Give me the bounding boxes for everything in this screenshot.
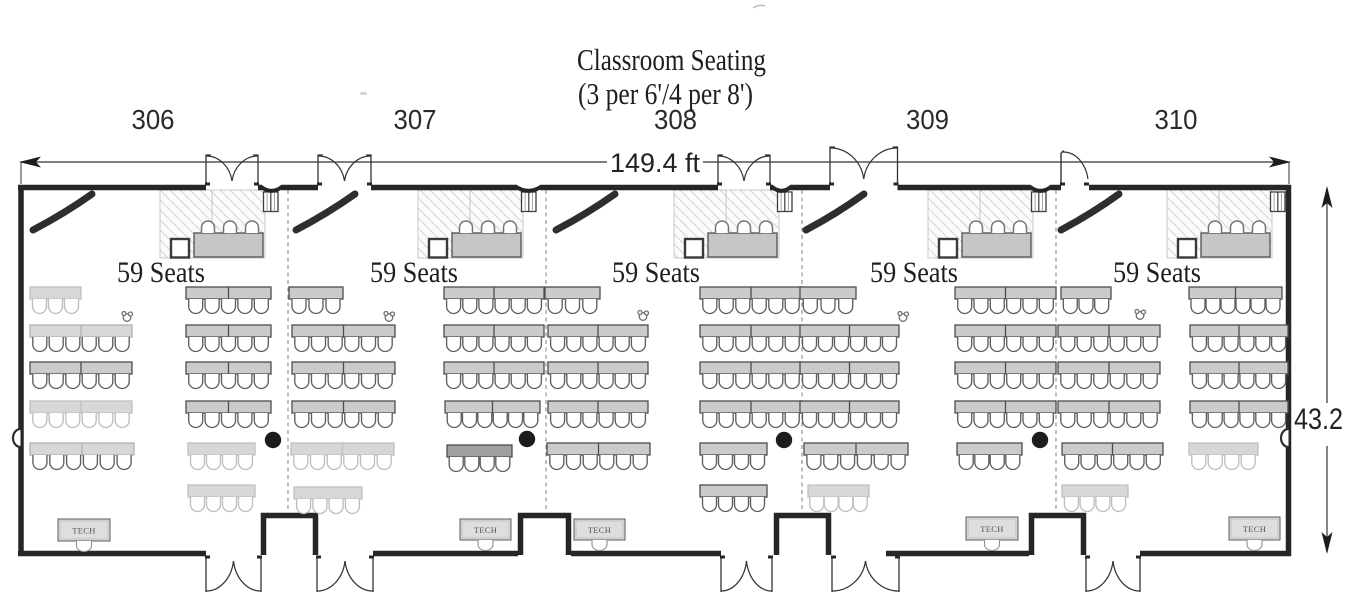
svg-text:TECH: TECH <box>980 524 1003 534</box>
svg-text:310: 310 <box>1155 104 1198 135</box>
svg-text:309: 309 <box>906 104 949 135</box>
svg-text:TECH: TECH <box>1243 524 1266 534</box>
svg-text:308: 308 <box>654 104 697 135</box>
svg-text:59 Seats: 59 Seats <box>1113 256 1201 289</box>
svg-text:Classroom Seating: Classroom Seating <box>577 42 766 77</box>
svg-text:149.4 ft: 149.4 ft <box>610 148 700 178</box>
svg-text:59 Seats: 59 Seats <box>612 256 700 289</box>
svg-text:307: 307 <box>394 104 437 135</box>
svg-text:59 Seats: 59 Seats <box>870 256 958 289</box>
svg-text:306: 306 <box>132 104 175 135</box>
svg-text:TECH: TECH <box>474 525 497 535</box>
svg-text:59 Seats: 59 Seats <box>117 256 205 289</box>
svg-text:TECH: TECH <box>72 526 95 536</box>
svg-text:TECH: TECH <box>588 525 611 535</box>
svg-text:43.2: 43.2 <box>1294 403 1343 436</box>
svg-text:59 Seats: 59 Seats <box>370 256 458 289</box>
